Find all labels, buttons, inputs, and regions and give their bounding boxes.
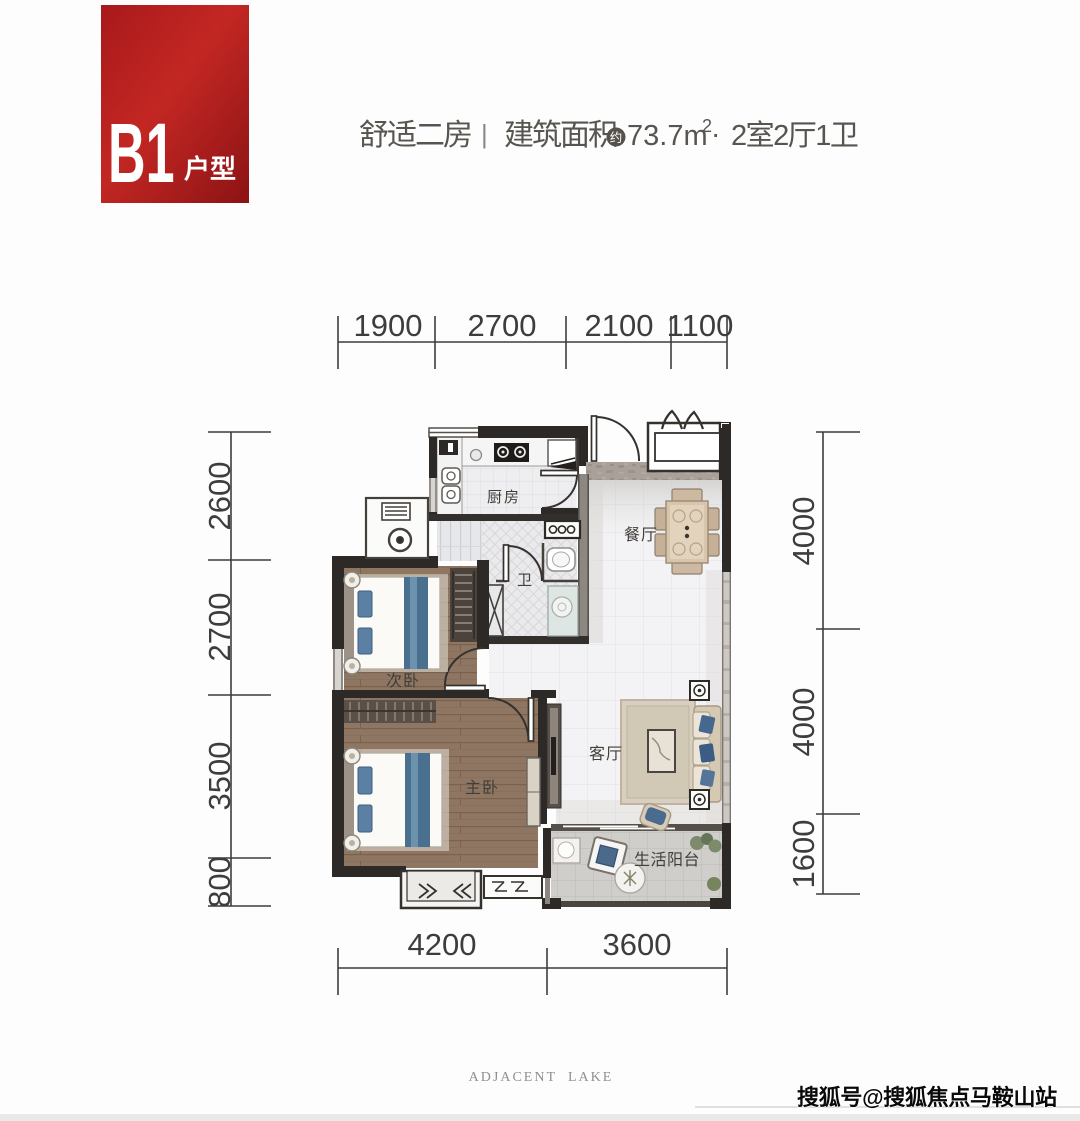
svg-text:餐厅: 餐厅 [624,526,658,544]
svg-text:建筑面积: 建筑面积 [504,119,617,152]
svg-text:3600: 3600 [603,927,672,962]
svg-text:2700: 2700 [202,593,237,662]
svg-text:3500: 3500 [202,742,237,811]
svg-text:ADJACENT LAKE: ADJACENT LAKE [469,1070,614,1085]
svg-text:搜狐号@搜狐焦点马鞍山站: 搜狐号@搜狐焦点马鞍山站 [797,1085,1057,1110]
svg-text:卫: 卫 [517,572,532,589]
svg-text:|: | [481,119,486,149]
svg-text:1600: 1600 [786,820,821,889]
svg-text:客厅: 客厅 [589,745,623,763]
svg-text:厨房: 厨房 [487,489,521,506]
svg-text:·: · [711,118,720,149]
svg-text:4200: 4200 [408,927,477,962]
svg-text:73.7m: 73.7m [627,120,708,152]
svg-text:舒适二房: 舒适二房 [359,119,471,152]
svg-text:800: 800 [202,856,237,908]
svg-text:B1: B1 [108,106,175,200]
svg-text:生活阳台: 生活阳台 [634,851,700,869]
svg-text:4000: 4000 [786,497,821,566]
svg-text:约: 约 [610,130,623,145]
svg-text:1900: 1900 [354,308,423,343]
svg-text:2600: 2600 [202,462,237,531]
svg-text:2100: 2100 [585,308,654,343]
svg-text:次卧: 次卧 [386,672,420,690]
svg-text:户型: 户型 [184,154,236,184]
svg-text:2室2厅1卫: 2室2厅1卫 [731,119,858,152]
svg-text:4000: 4000 [786,688,821,757]
svg-text:主卧: 主卧 [465,779,499,797]
svg-text:2700: 2700 [468,308,537,343]
svg-text:1100: 1100 [667,308,734,343]
